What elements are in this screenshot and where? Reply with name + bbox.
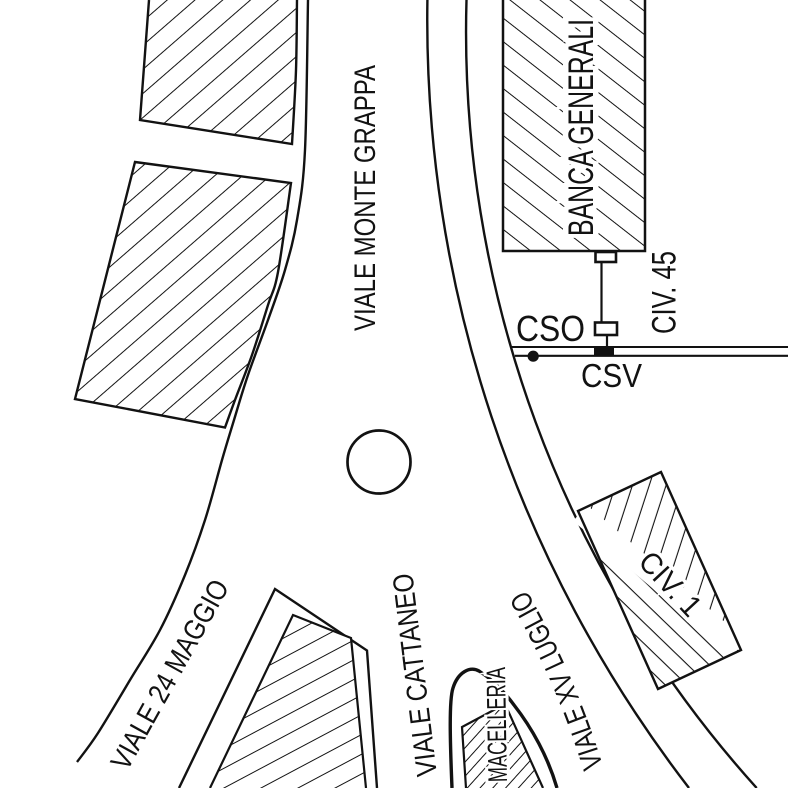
svg-text:BANCA GENERALI: BANCA GENERALI bbox=[562, 19, 601, 236]
svg-text:VIALE MONTE GRAPPA: VIALE MONTE GRAPPA bbox=[349, 65, 382, 331]
svg-text:MACELLERIA: MACELLERIA bbox=[481, 667, 513, 783]
svg-text:CIV. 45: CIV. 45 bbox=[646, 251, 684, 334]
svg-text:CSO: CSO bbox=[516, 308, 585, 349]
svg-text:CSV: CSV bbox=[581, 357, 642, 394]
